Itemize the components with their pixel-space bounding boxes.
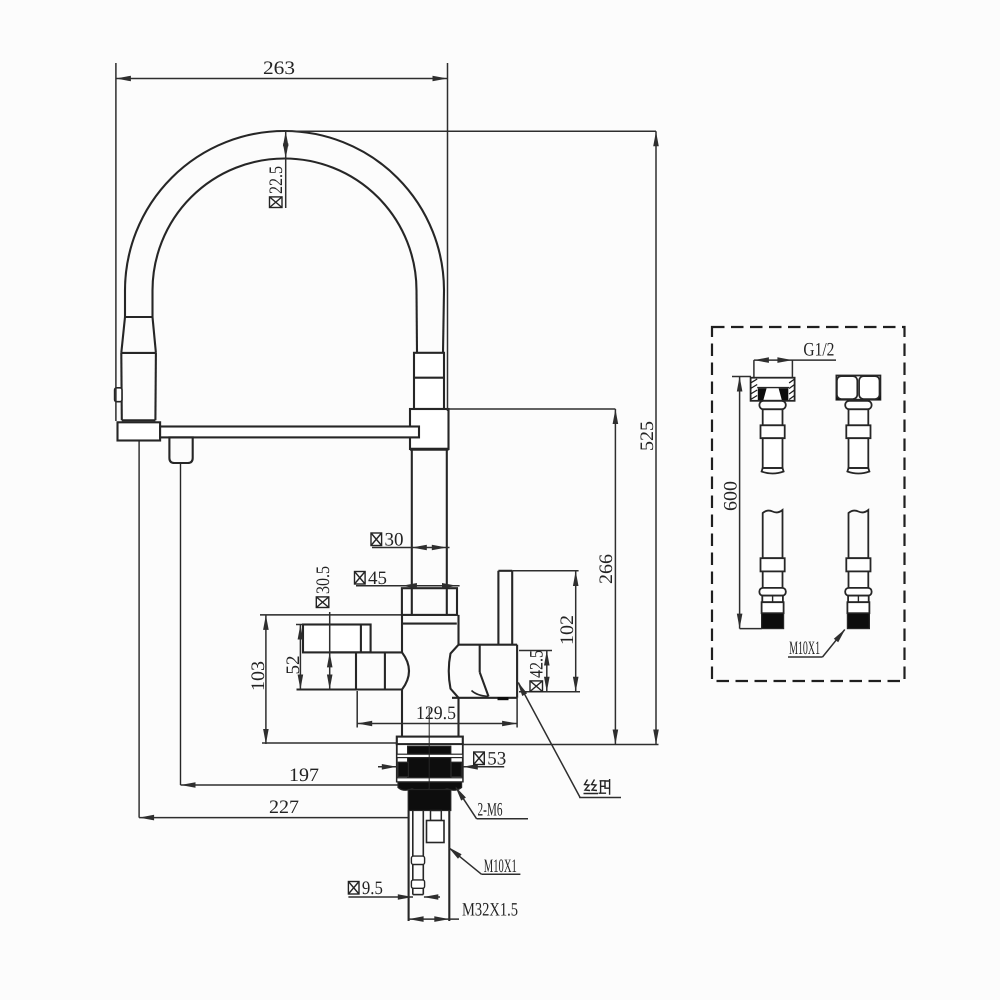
svg-text:G1/2: G1/2 [803, 340, 834, 361]
svg-text:22.5: 22.5 [266, 166, 287, 194]
svg-text:103: 103 [248, 661, 269, 691]
svg-text:M10X1: M10X1 [789, 638, 820, 659]
svg-text:42.5: 42.5 [527, 650, 548, 678]
svg-text:52: 52 [283, 656, 304, 675]
svg-text:129.5: 129.5 [416, 703, 456, 724]
svg-text:263: 263 [263, 58, 295, 79]
svg-text:M10X1: M10X1 [484, 856, 517, 877]
svg-text:2-M6: 2-M6 [478, 800, 503, 821]
svg-text:197: 197 [289, 765, 319, 786]
svg-text:600: 600 [721, 481, 742, 511]
svg-text:266: 266 [596, 554, 617, 584]
svg-text:102: 102 [557, 615, 578, 645]
svg-text:9.5: 9.5 [362, 878, 383, 899]
svg-text:30.5: 30.5 [313, 566, 334, 594]
svg-text:M32X1.5: M32X1.5 [462, 900, 518, 921]
svg-text:53: 53 [487, 749, 506, 770]
svg-text:525: 525 [637, 421, 658, 451]
svg-text:227: 227 [269, 797, 299, 818]
